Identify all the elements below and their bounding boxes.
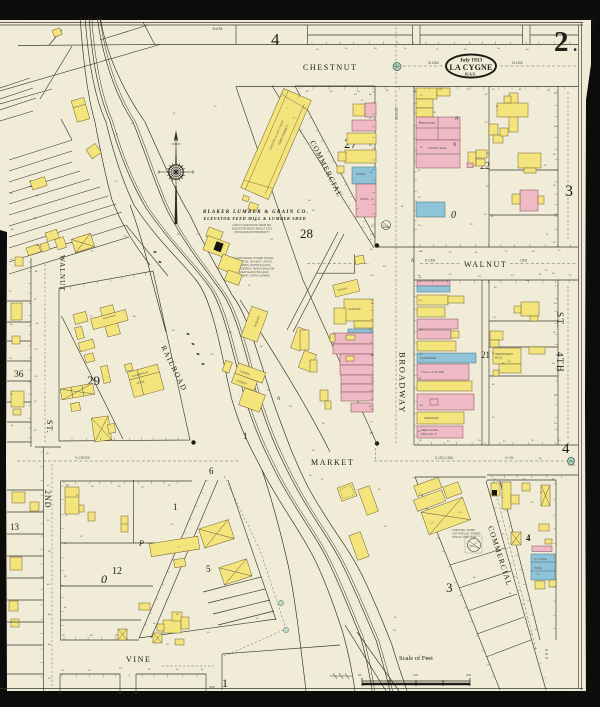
- svg-text:VINE: VINE: [126, 655, 152, 664]
- svg-text:36: 36: [14, 370, 24, 380]
- svg-text:½ CROSS: ½ CROSS: [75, 456, 90, 460]
- svg-text:3: 3: [565, 183, 573, 200]
- svg-text:WALNUT: WALNUT: [58, 255, 66, 292]
- svg-text:P: P: [138, 539, 144, 548]
- svg-text:W.1306: W.1306: [512, 61, 523, 65]
- svg-text:13: 13: [10, 522, 20, 532]
- svg-text:ST. CLOUD: ST. CLOUD: [534, 558, 547, 561]
- svg-text:N: N: [276, 397, 281, 402]
- svg-text:BROADWAY: BROADWAY: [398, 352, 408, 414]
- svg-text:4: 4: [562, 441, 570, 457]
- svg-text:KAS.: KAS.: [465, 72, 477, 77]
- svg-text:BLAKER LUMBER & GRAIN CO.: BLAKER LUMBER & GRAIN CO.: [202, 210, 309, 215]
- svg-text:AUDITOR.: AUDITOR.: [348, 307, 362, 311]
- svg-text:12: 12: [112, 566, 122, 577]
- svg-text:N: N: [452, 143, 457, 148]
- svg-text:2ND: 2ND: [43, 490, 52, 509]
- svg-text:4: 4: [526, 533, 531, 543]
- svg-text:200: 200: [466, 673, 471, 677]
- svg-text:1: 1: [222, 676, 228, 690]
- svg-text:AGRIC: AGRIC: [360, 197, 369, 201]
- svg-text:0: 0: [101, 572, 107, 586]
- svg-text:21: 21: [481, 350, 490, 360]
- svg-text:0: 0: [451, 210, 456, 221]
- svg-text:CAP. PER DAY. POWER: CAP. PER DAY. POWER: [452, 532, 481, 536]
- svg-text:LYON: LYON: [568, 464, 575, 467]
- svg-text:NO WATCHMAN. POWER STEAM.: NO WATCHMAN. POWER STEAM.: [232, 256, 273, 260]
- svg-text:28: 28: [300, 226, 313, 241]
- svg-text:FURNITURE: FURNITURE: [419, 121, 435, 125]
- svg-text:OPERA: OPERA: [356, 172, 366, 176]
- svg-text:MARKET: MARKET: [311, 458, 354, 467]
- svg-text:ST.: ST.: [45, 420, 54, 434]
- svg-text:1306: 1306: [520, 259, 527, 263]
- svg-text:50: 50: [358, 673, 362, 677]
- svg-text:SEED HOUSE: SEED HOUSE: [421, 428, 438, 432]
- svg-text:4TH: 4TH: [555, 352, 565, 373]
- svg-text:HARDWARE: HARDWARE: [420, 356, 436, 360]
- svg-text:CORN MILL 50 BBL: CORN MILL 50 BBL: [452, 528, 476, 532]
- svg-text:ON RAILROAD PROPERTY: ON RAILROAD PROPERTY: [234, 230, 270, 234]
- svg-text:4: 4: [271, 30, 280, 49]
- svg-text:5: 5: [206, 564, 211, 574]
- svg-text:ST.: ST.: [555, 312, 565, 329]
- svg-text:.: .: [573, 36, 577, 55]
- svg-text:1881 HALL 2º: 1881 HALL 2º: [421, 432, 437, 436]
- svg-text:CENTER: CENTER: [394, 107, 398, 121]
- svg-text:½ CR.: ½ CR.: [505, 456, 514, 460]
- svg-text:3rd St.: 3rd St.: [212, 26, 223, 31]
- svg-text:Y.M.C.A & STORE: Y.M.C.A & STORE: [421, 370, 444, 374]
- svg-text:1: 1: [243, 431, 248, 441]
- svg-text:2: 2: [554, 26, 569, 58]
- svg-text:COFFEY HALL: COFFEY HALL: [428, 146, 448, 150]
- svg-text:75: 75: [545, 656, 549, 660]
- svg-text:WALNUT: WALNUT: [464, 260, 507, 269]
- svg-text:3RD: 3RD: [209, 685, 216, 689]
- svg-text:W.1306: W.1306: [428, 61, 439, 65]
- svg-text:CHESTNUT: CHESTNUT: [303, 63, 358, 72]
- svg-text:6: 6: [209, 466, 214, 476]
- svg-text:3: 3: [446, 580, 453, 595]
- svg-text:100: 100: [413, 673, 418, 677]
- svg-text:1: 1: [173, 502, 178, 512]
- svg-text:N: N: [454, 117, 459, 122]
- svg-text:MILLS: MILLS: [495, 357, 503, 360]
- svg-text:E.1201,1306: E.1201,1306: [435, 456, 453, 460]
- svg-text:N: N: [410, 259, 415, 264]
- svg-text:E.1306: E.1306: [425, 259, 435, 263]
- svg-text:STEAM. FUEL COAL: STEAM. FUEL COAL: [452, 535, 477, 539]
- svg-text:FIREARMS: FIREARMS: [424, 416, 439, 420]
- svg-text:WHEAT ELEVATOR LEGS: WHEAT ELEVATOR LEGS: [238, 270, 269, 274]
- svg-text:HOTEL: HOTEL: [534, 567, 543, 570]
